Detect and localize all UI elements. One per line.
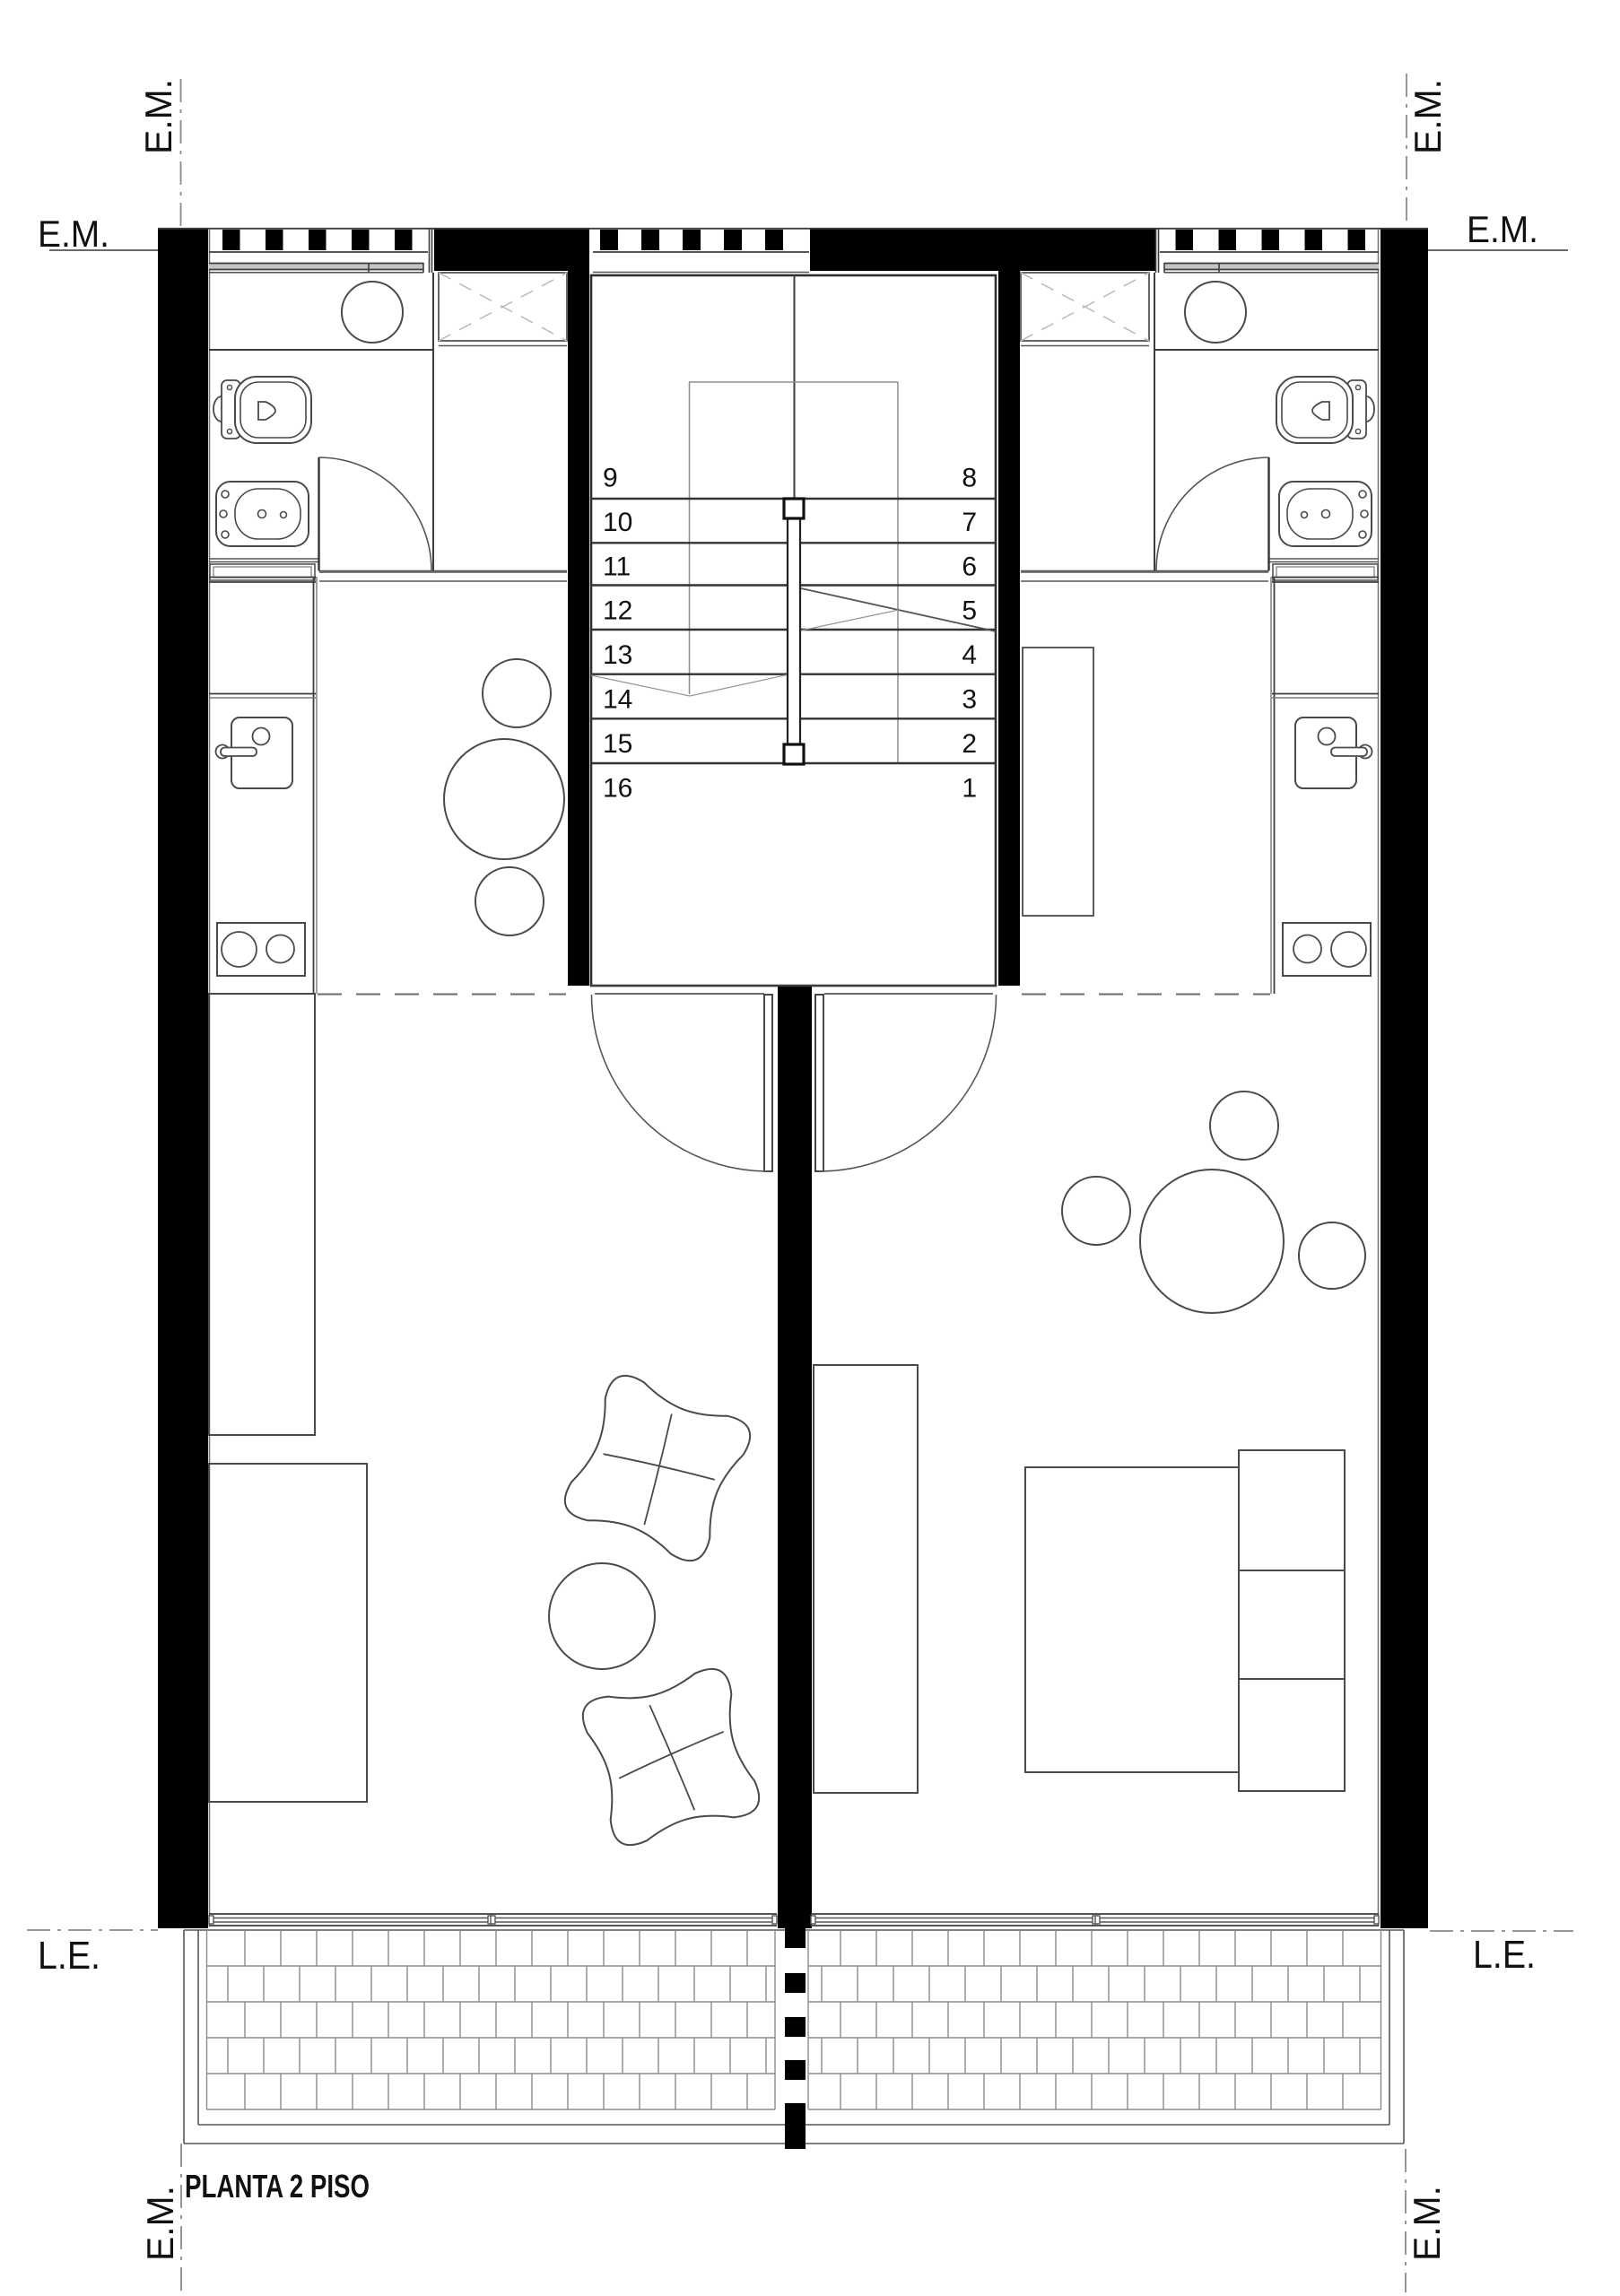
- svg-text:4: 4: [962, 640, 977, 670]
- svg-text:3: 3: [962, 685, 977, 715]
- svg-text:16: 16: [603, 773, 632, 803]
- svg-text:1: 1: [962, 773, 977, 803]
- svg-text:9: 9: [603, 464, 618, 493]
- svg-text:15: 15: [603, 729, 632, 759]
- svg-text:14: 14: [603, 685, 632, 715]
- svg-text:12: 12: [603, 596, 632, 626]
- svg-text:E.M.: E.M.: [1406, 2186, 1448, 2261]
- svg-text:6: 6: [962, 552, 977, 581]
- svg-text:E.M.: E.M.: [137, 79, 179, 154]
- svg-text:E.M.: E.M.: [1407, 79, 1449, 154]
- svg-text:13: 13: [603, 640, 632, 670]
- svg-text:L.E.: L.E.: [38, 1934, 100, 1978]
- svg-text:8: 8: [962, 464, 977, 493]
- svg-text:5: 5: [962, 596, 977, 626]
- svg-text:2: 2: [962, 729, 977, 759]
- svg-text:E.M.: E.M.: [1467, 208, 1538, 250]
- svg-text:10: 10: [603, 508, 632, 537]
- svg-text:E.M.: E.M.: [139, 2186, 181, 2261]
- svg-text:7: 7: [962, 508, 977, 537]
- svg-text:11: 11: [603, 552, 631, 581]
- svg-text:E.M.: E.M.: [38, 213, 109, 255]
- svg-text:PLANTA 2 PISO: PLANTA 2 PISO: [185, 2168, 370, 2205]
- svg-text:L.E.: L.E.: [1473, 1933, 1536, 1977]
